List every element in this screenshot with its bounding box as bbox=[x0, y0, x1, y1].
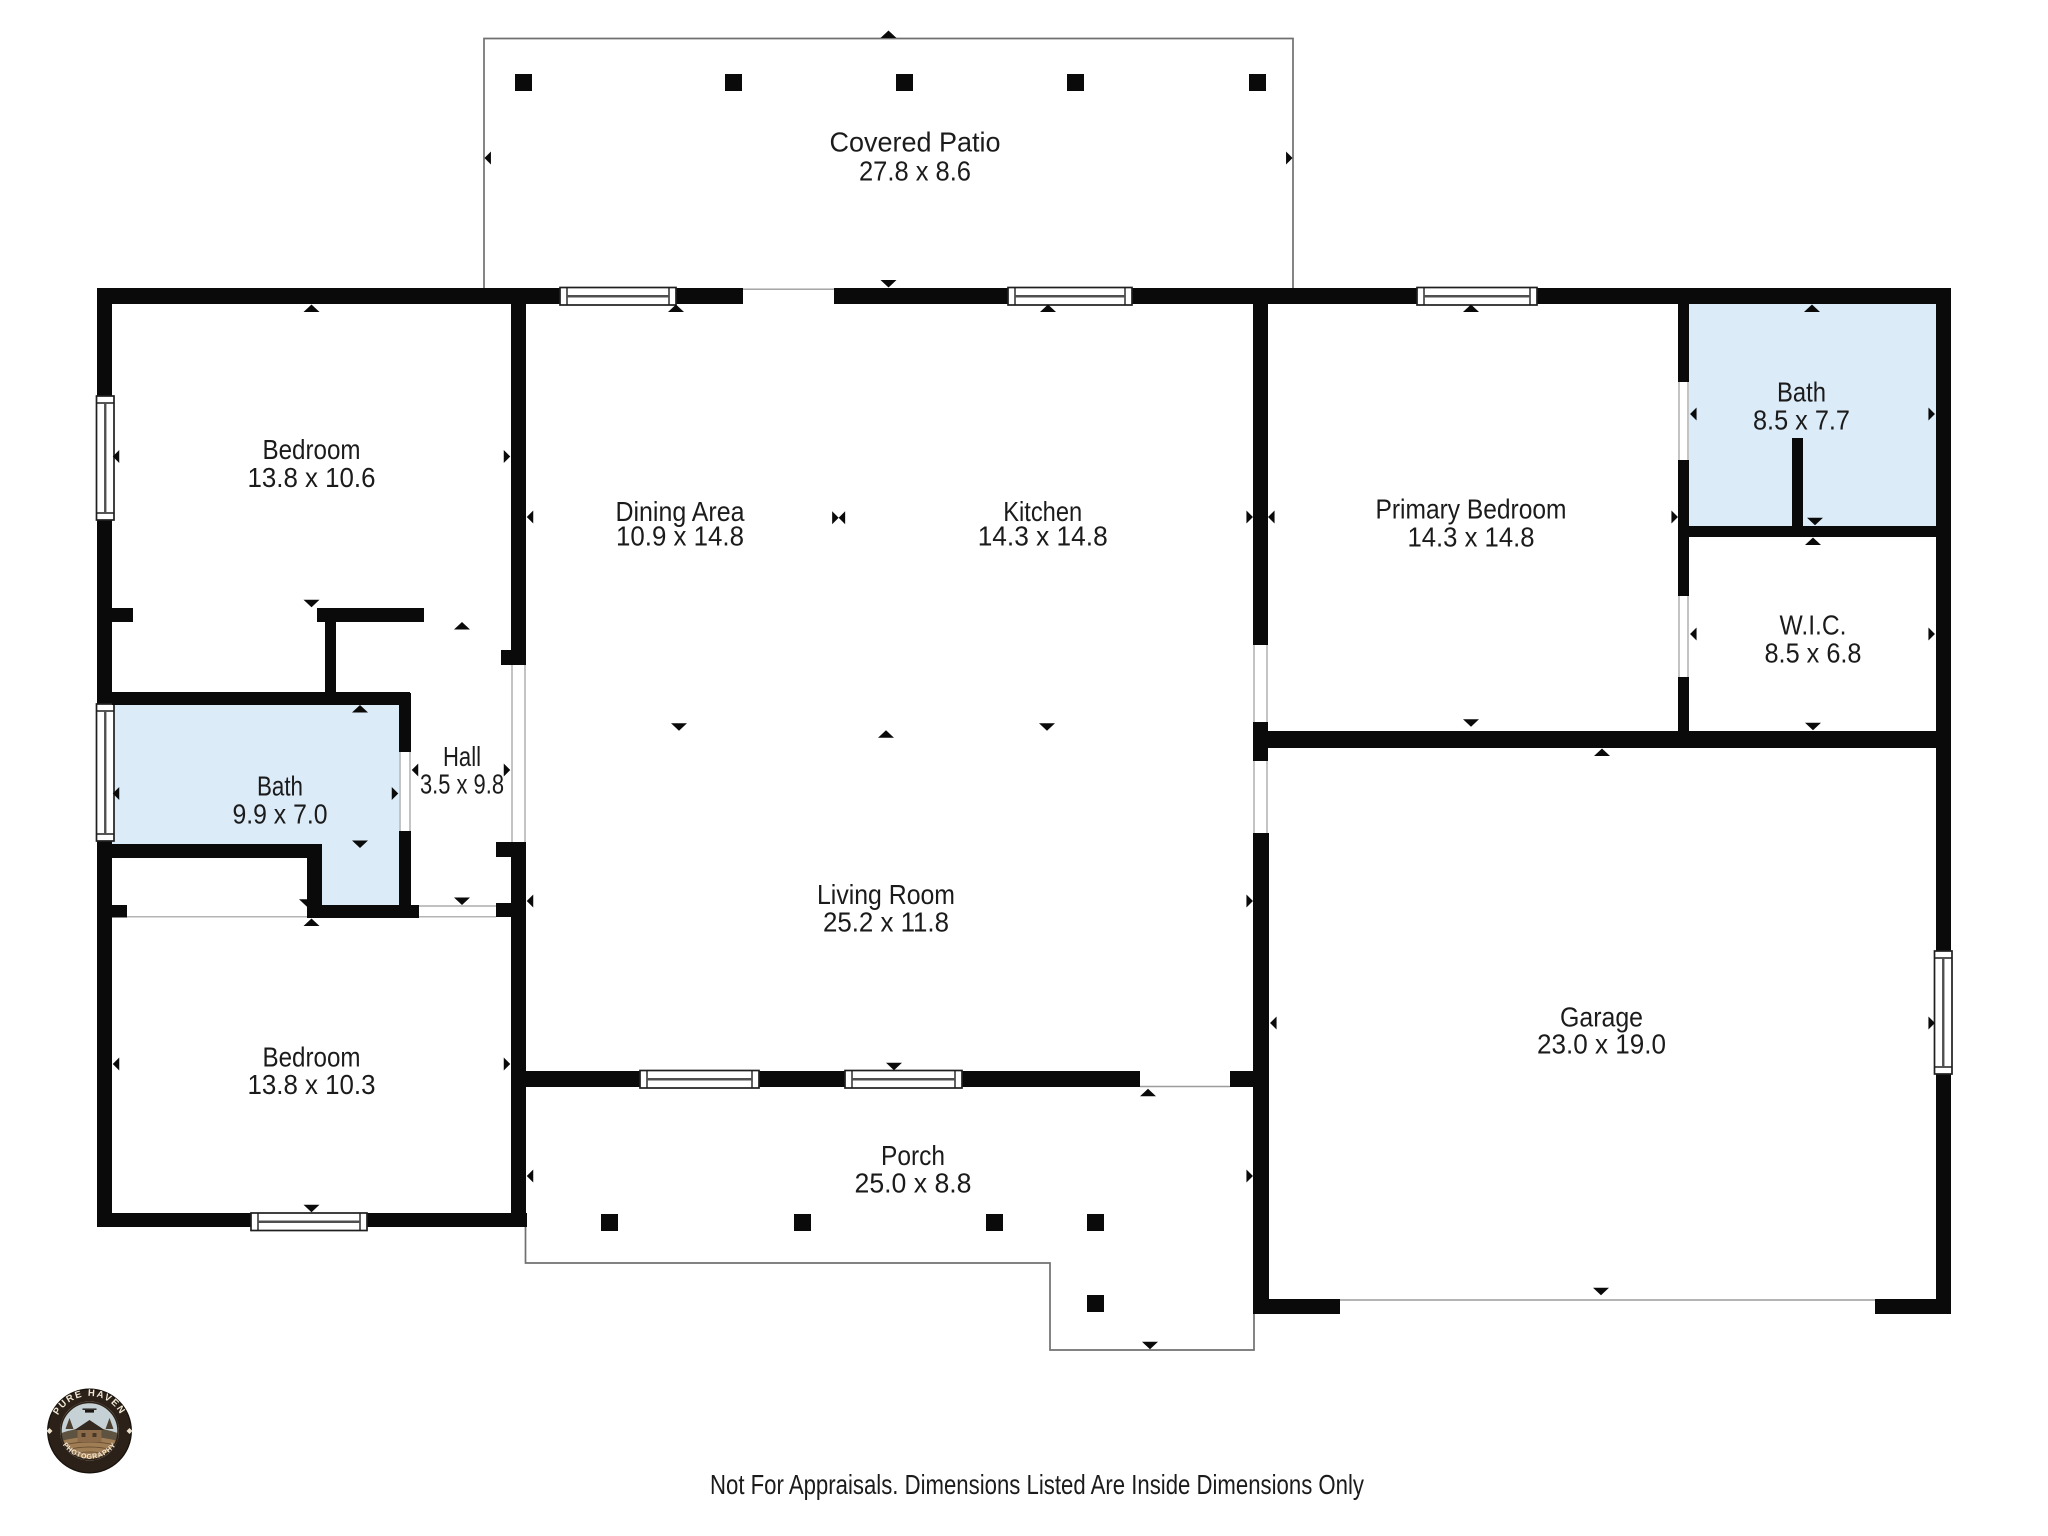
svg-text:25.2 x 11.8: 25.2 x 11.8 bbox=[823, 907, 949, 938]
svg-text:13.8 x 10.3: 13.8 x 10.3 bbox=[248, 1069, 376, 1100]
svg-text:3.5 x 9.8: 3.5 x 9.8 bbox=[420, 769, 504, 800]
svg-text:27.8 x 8.6: 27.8 x 8.6 bbox=[859, 156, 971, 187]
svg-text:Bath: Bath bbox=[257, 771, 303, 802]
svg-text:Porch: Porch bbox=[881, 1140, 945, 1171]
svg-text:Living Room: Living Room bbox=[817, 879, 955, 910]
svg-text:Bedroom: Bedroom bbox=[263, 434, 361, 465]
svg-text:Bedroom: Bedroom bbox=[263, 1042, 361, 1073]
svg-text:8.5 x 6.8: 8.5 x 6.8 bbox=[1765, 638, 1862, 669]
svg-text:8.5 x 7.7: 8.5 x 7.7 bbox=[1753, 405, 1850, 436]
svg-text:10.9 x 14.8: 10.9 x 14.8 bbox=[616, 521, 744, 552]
svg-text:W.I.C.: W.I.C. bbox=[1780, 610, 1847, 641]
svg-text:Covered Patio: Covered Patio bbox=[830, 127, 1001, 158]
svg-text:Hall: Hall bbox=[443, 741, 481, 772]
svg-text:23.0 x 19.0: 23.0 x 19.0 bbox=[1537, 1029, 1666, 1060]
svg-text:Primary Bedroom: Primary Bedroom bbox=[1376, 494, 1567, 525]
svg-text:Not For Appraisals. Dimensions: Not For Appraisals. Dimensions Listed Ar… bbox=[710, 1469, 1364, 1500]
svg-text:9.9 x 7.0: 9.9 x 7.0 bbox=[233, 799, 328, 830]
svg-text:25.0 x 8.8: 25.0 x 8.8 bbox=[855, 1168, 972, 1199]
svg-text:Bath: Bath bbox=[1777, 377, 1826, 408]
svg-text:14.3 x 14.8: 14.3 x 14.8 bbox=[978, 521, 1108, 552]
svg-text:13.8 x 10.6: 13.8 x 10.6 bbox=[248, 462, 376, 493]
svg-text:14.3 x 14.8: 14.3 x 14.8 bbox=[1408, 522, 1535, 553]
